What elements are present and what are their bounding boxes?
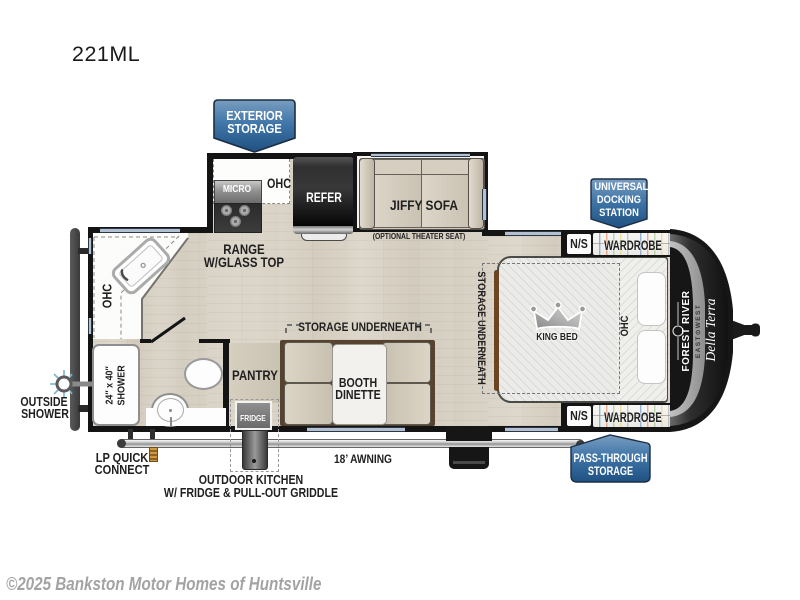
svg-text:EAST⊙WEST: EAST⊙WEST [695, 304, 702, 358]
svg-text:FOREST RIVER: FOREST RIVER [681, 290, 692, 371]
svg-text:Della Terra: Della Terra [703, 298, 718, 362]
